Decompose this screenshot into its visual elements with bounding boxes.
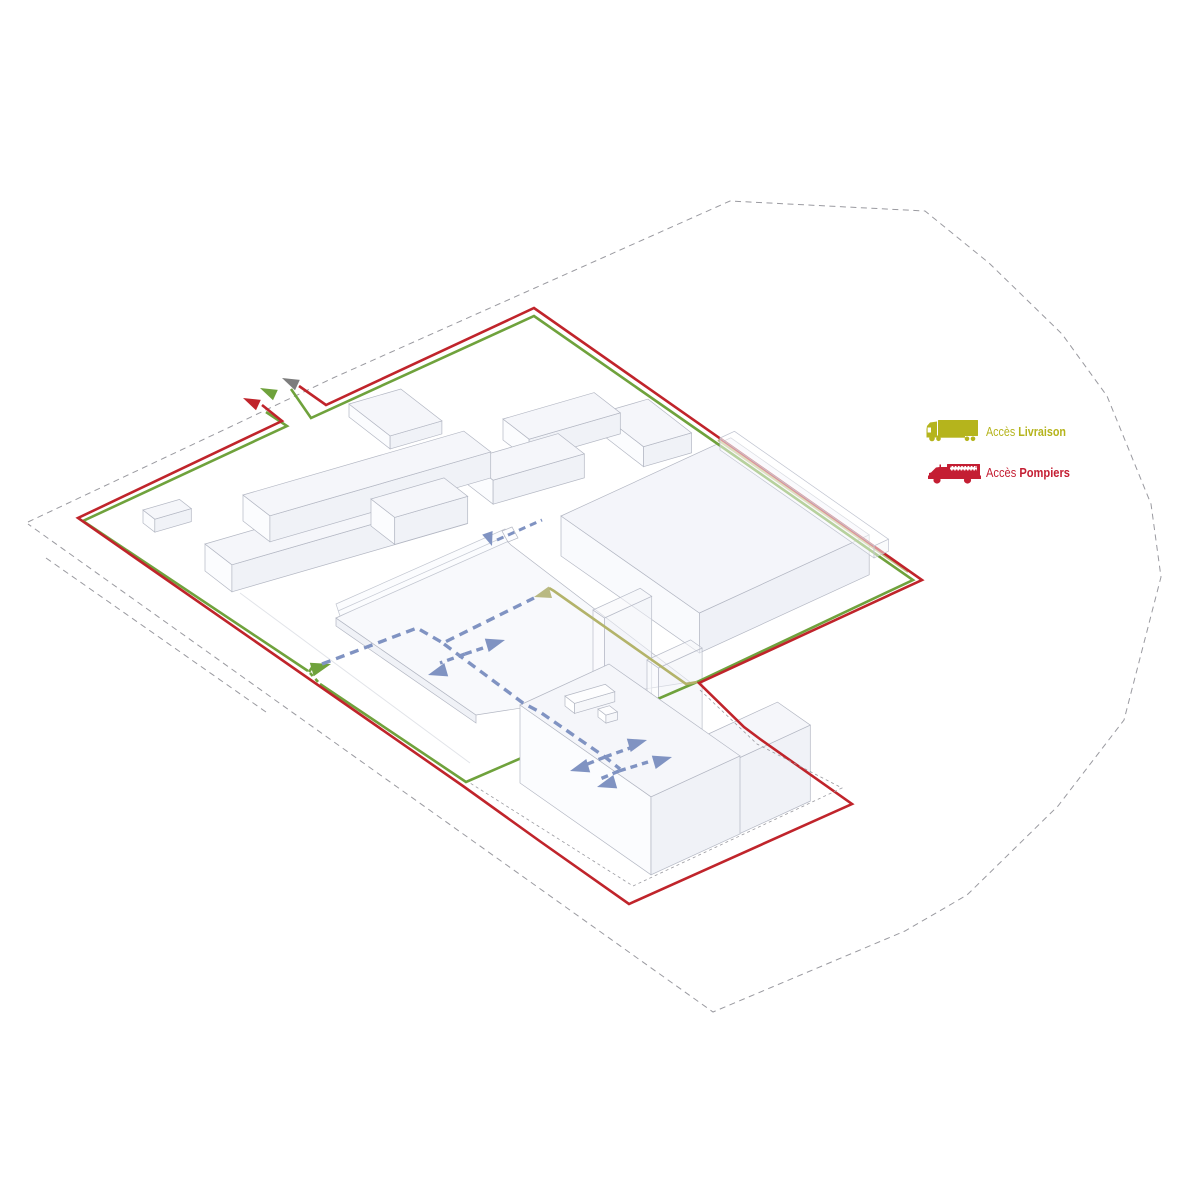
- svg-text:Accès Pompiers: Accès Pompiers: [986, 466, 1070, 480]
- svg-text:Accès Livraison: Accès Livraison: [986, 425, 1066, 439]
